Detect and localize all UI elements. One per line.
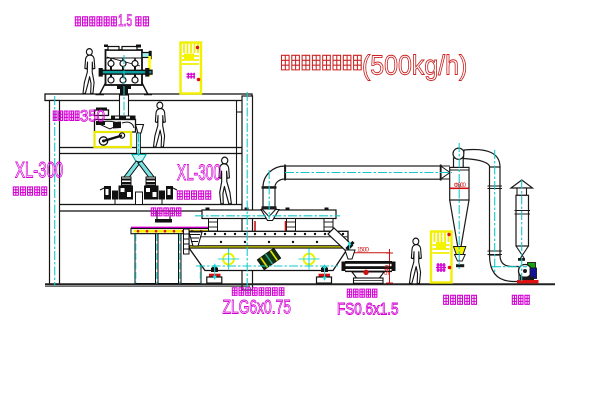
svg-text:Φ600: Φ600 [454,182,467,189]
svg-text:FS0.6x1.5: FS0.6x1.5 [337,300,399,319]
svg-text:XL-300: XL-300 [15,158,63,183]
svg-text:ZLG6x0.75: ZLG6x0.75 [223,296,291,318]
svg-text:1.5: 1.5 [118,12,132,30]
svg-text:350: 350 [80,108,105,126]
svg-text:(500kg/h): (500kg/h) [362,49,467,81]
svg-text:1500: 1500 [357,247,369,254]
svg-text:540: 540 [384,265,391,275]
svg-text:XL-300: XL-300 [177,160,221,185]
